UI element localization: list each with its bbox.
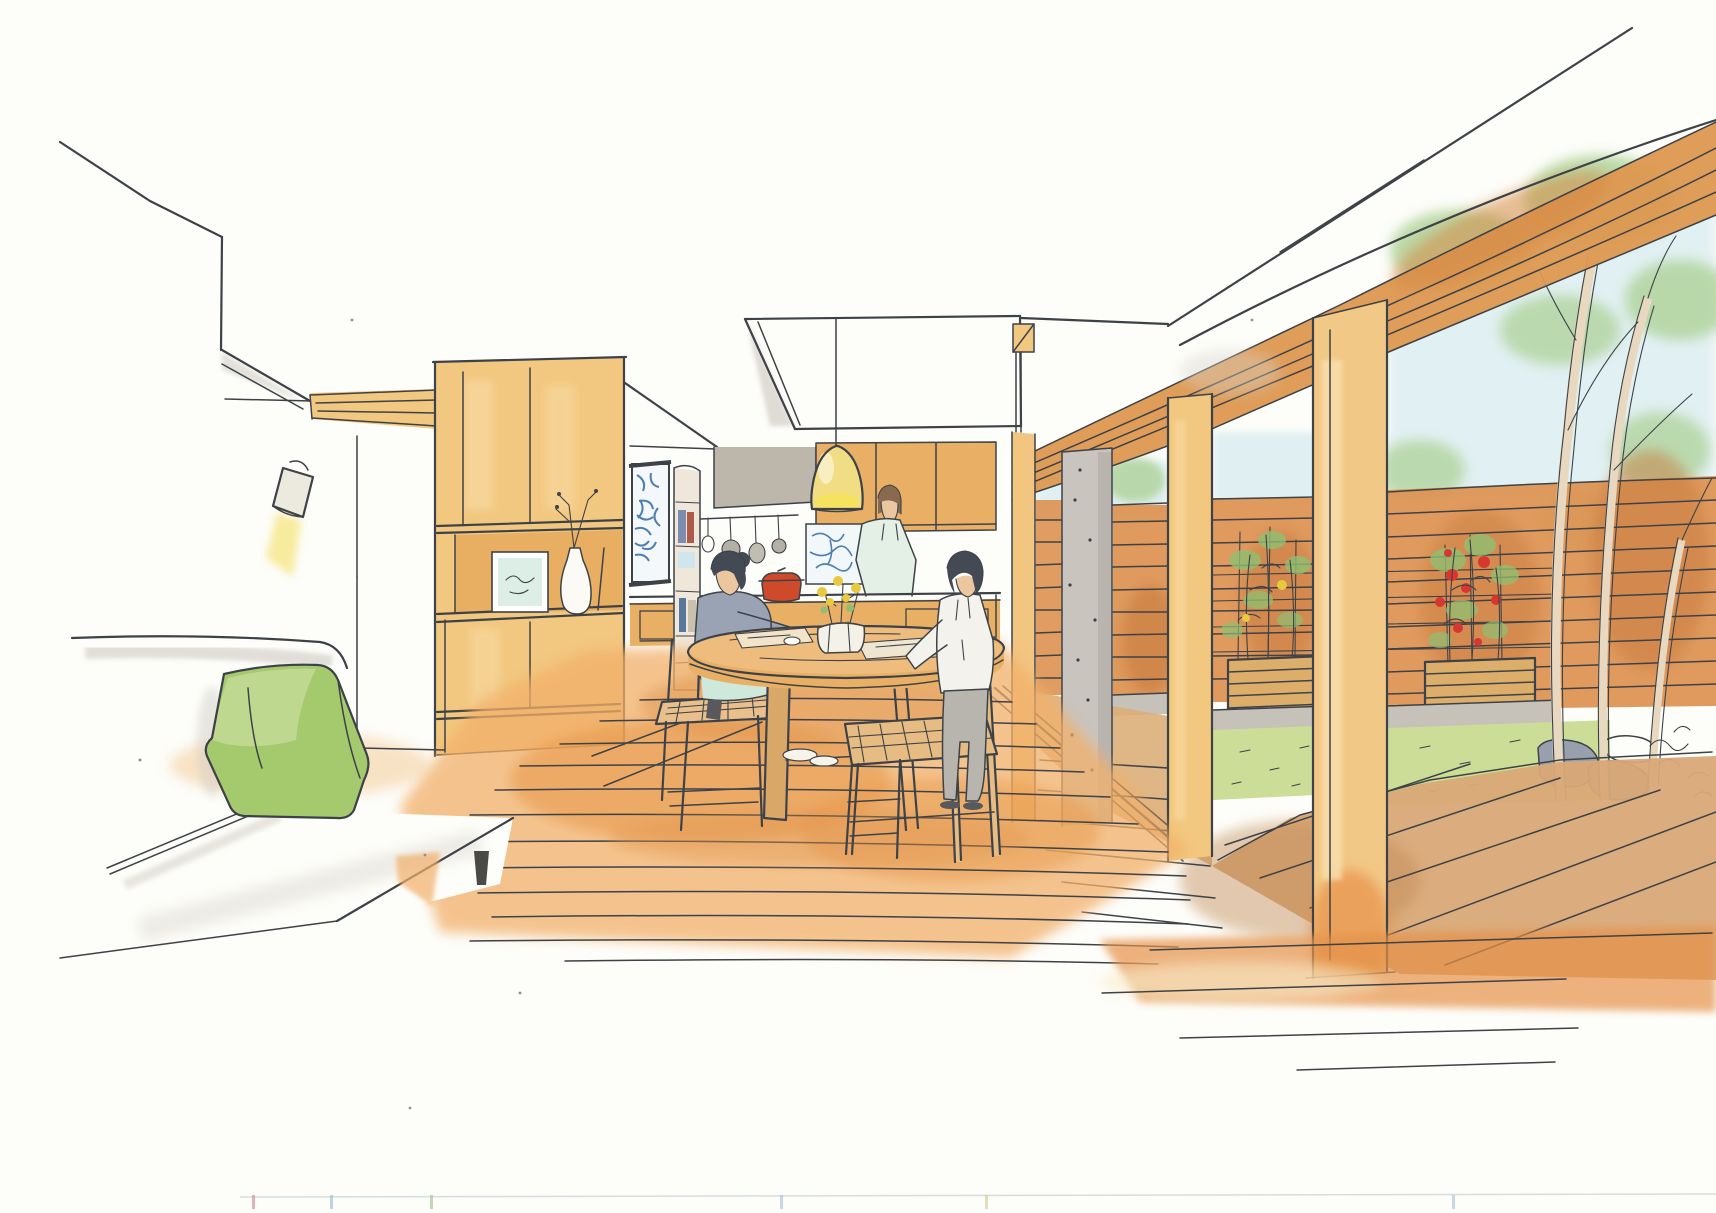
interior-perspective-sketch bbox=[0, 0, 1716, 1213]
post-middle bbox=[1168, 394, 1212, 861]
sky-mid bbox=[1213, 432, 1323, 502]
lawn-mid bbox=[1213, 726, 1315, 800]
sketch-page bbox=[0, 0, 1716, 1213]
kitchen-window bbox=[806, 524, 864, 584]
post-foreground bbox=[1306, 300, 1395, 990]
wall-artwork bbox=[629, 462, 671, 585]
table-shadow bbox=[610, 810, 1030, 866]
range-hood bbox=[714, 447, 816, 508]
